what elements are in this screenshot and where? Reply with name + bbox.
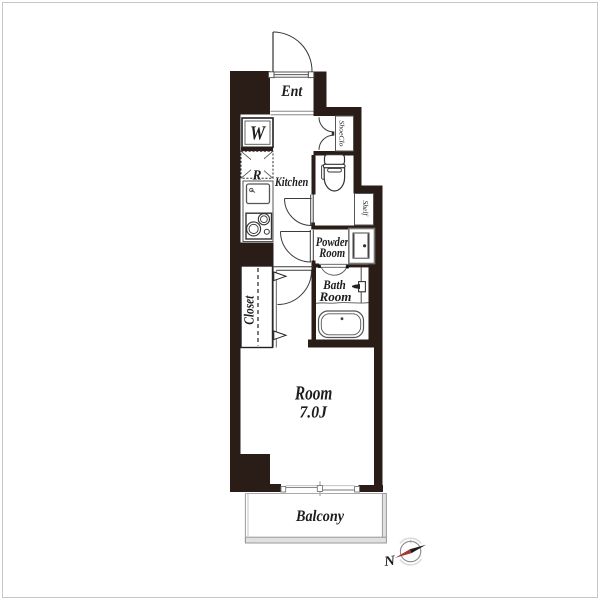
svg-text:Balcony: Balcony (295, 508, 345, 525)
svg-text:Room: Room (294, 382, 332, 404)
svg-text:W: W (250, 123, 266, 145)
svg-text:Kitchen: Kitchen (274, 174, 308, 189)
svg-text:Ent: Ent (280, 83, 302, 100)
svg-text:Room: Room (318, 289, 351, 304)
svg-text:Closet: Closet (243, 295, 258, 325)
svg-text:7.0J: 7.0J (299, 403, 327, 422)
svg-text:ShoeClo: ShoeClo (338, 121, 346, 148)
svg-text:Shelf: Shelf (361, 201, 370, 217)
svg-text:Room: Room (318, 245, 345, 260)
